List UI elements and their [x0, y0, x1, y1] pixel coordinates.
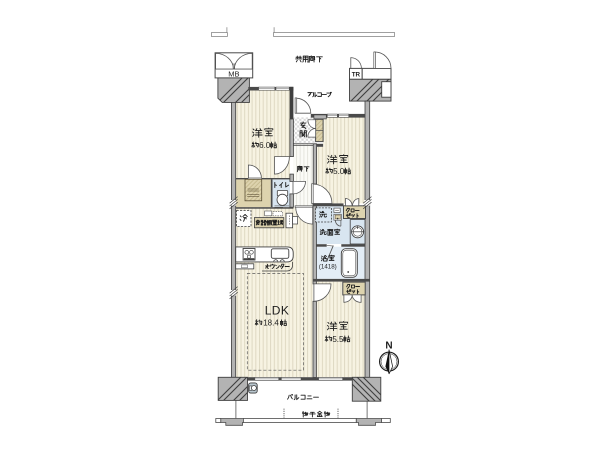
svg-text:(1418): (1418): [319, 264, 337, 271]
svg-text:LDK: LDK: [265, 304, 290, 318]
svg-text:5.0: 5.0: [333, 167, 345, 176]
svg-text:5.5: 5.5: [332, 335, 344, 344]
svg-text:MB: MB: [228, 69, 239, 78]
svg-text:TR: TR: [352, 72, 361, 79]
svg-text:6.0: 6.0: [259, 141, 271, 150]
svg-text:18.4: 18.4: [263, 319, 279, 328]
